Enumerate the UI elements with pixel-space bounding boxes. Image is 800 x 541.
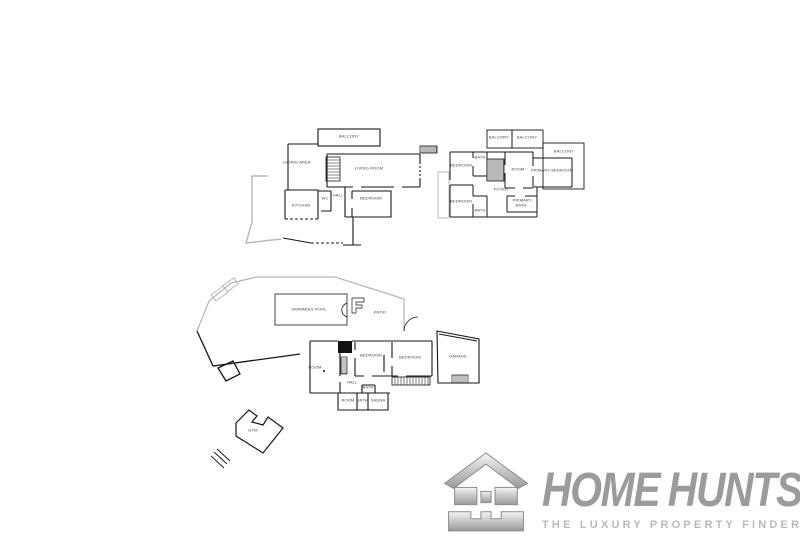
room-label-dining-area: DINING AREA <box>283 161 310 166</box>
room-label-bedroom-lower: BEDROOM <box>450 200 472 205</box>
room-label-swimming-pool: SWIMMING POOL <box>291 308 327 313</box>
room-label-patio: PATIO <box>374 311 386 316</box>
room-label-balcony-right: BALCONY <box>554 150 574 155</box>
room-label-balcony: BALCONY <box>339 135 359 140</box>
logo-text: HOMEHUNTS THE LUXURY PROPERTY FINDERS <box>542 451 800 531</box>
room-label-balcony-middle: BALCONY <box>517 136 537 141</box>
floorplan-page: BALCONYDINING AREALIVING ROOMKITCHENWCHA… <box>0 0 800 541</box>
room-label-balcony-left: BALCONY <box>489 136 509 141</box>
house-icon <box>438 451 534 537</box>
room-label-primary-bedroom: PRIMARY BEDROOM <box>531 169 573 174</box>
room-label-bath-small: BATH <box>357 399 368 404</box>
room-label-gym: GYM <box>248 429 258 434</box>
logo-brand-home: HOME <box>542 464 659 517</box>
room-label-sauna: SAUNA <box>371 399 386 404</box>
logo-brand: HOMEHUNTS <box>542 467 800 515</box>
room-label-bedroom-upper: BEDROOM <box>450 164 472 169</box>
room-label-foyer: FOYER <box>494 188 509 193</box>
room-label-living-room: LIVING ROOM <box>355 167 383 172</box>
room-label-room: ROOM <box>511 168 524 173</box>
logo-tagline: THE LUXURY PROPERTY FINDERS <box>542 519 800 531</box>
room-label-bath-upper: BATH <box>475 156 486 161</box>
room-label-bedroom-left: BEDROOM <box>360 354 382 359</box>
room-label-hall: HALL <box>333 194 344 199</box>
room-label-wc: WC <box>322 197 329 202</box>
room-label-bedroom-right: BEDROOM <box>399 356 421 361</box>
room-label-bedroom: BEDROOM <box>360 197 382 202</box>
room-label-room-main: ROOM <box>308 366 321 371</box>
homehunts-logo: HOMEHUNTS THE LUXURY PROPERTY FINDERS <box>438 451 800 537</box>
room-label-hall: HALL <box>347 381 358 386</box>
room-label-kitchen: KITCHEN <box>292 204 311 209</box>
room-label-garage: GARAGE <box>449 355 467 360</box>
room-label-bath-lower: BATH <box>475 209 486 214</box>
room-label-bath-inner: BATH <box>363 386 374 391</box>
logo-brand-hunts: HUNTS <box>668 464 800 517</box>
room-label-primary-bath: PRIMARY BATH <box>513 198 530 207</box>
room-label-room-small: ROOM <box>341 399 354 404</box>
